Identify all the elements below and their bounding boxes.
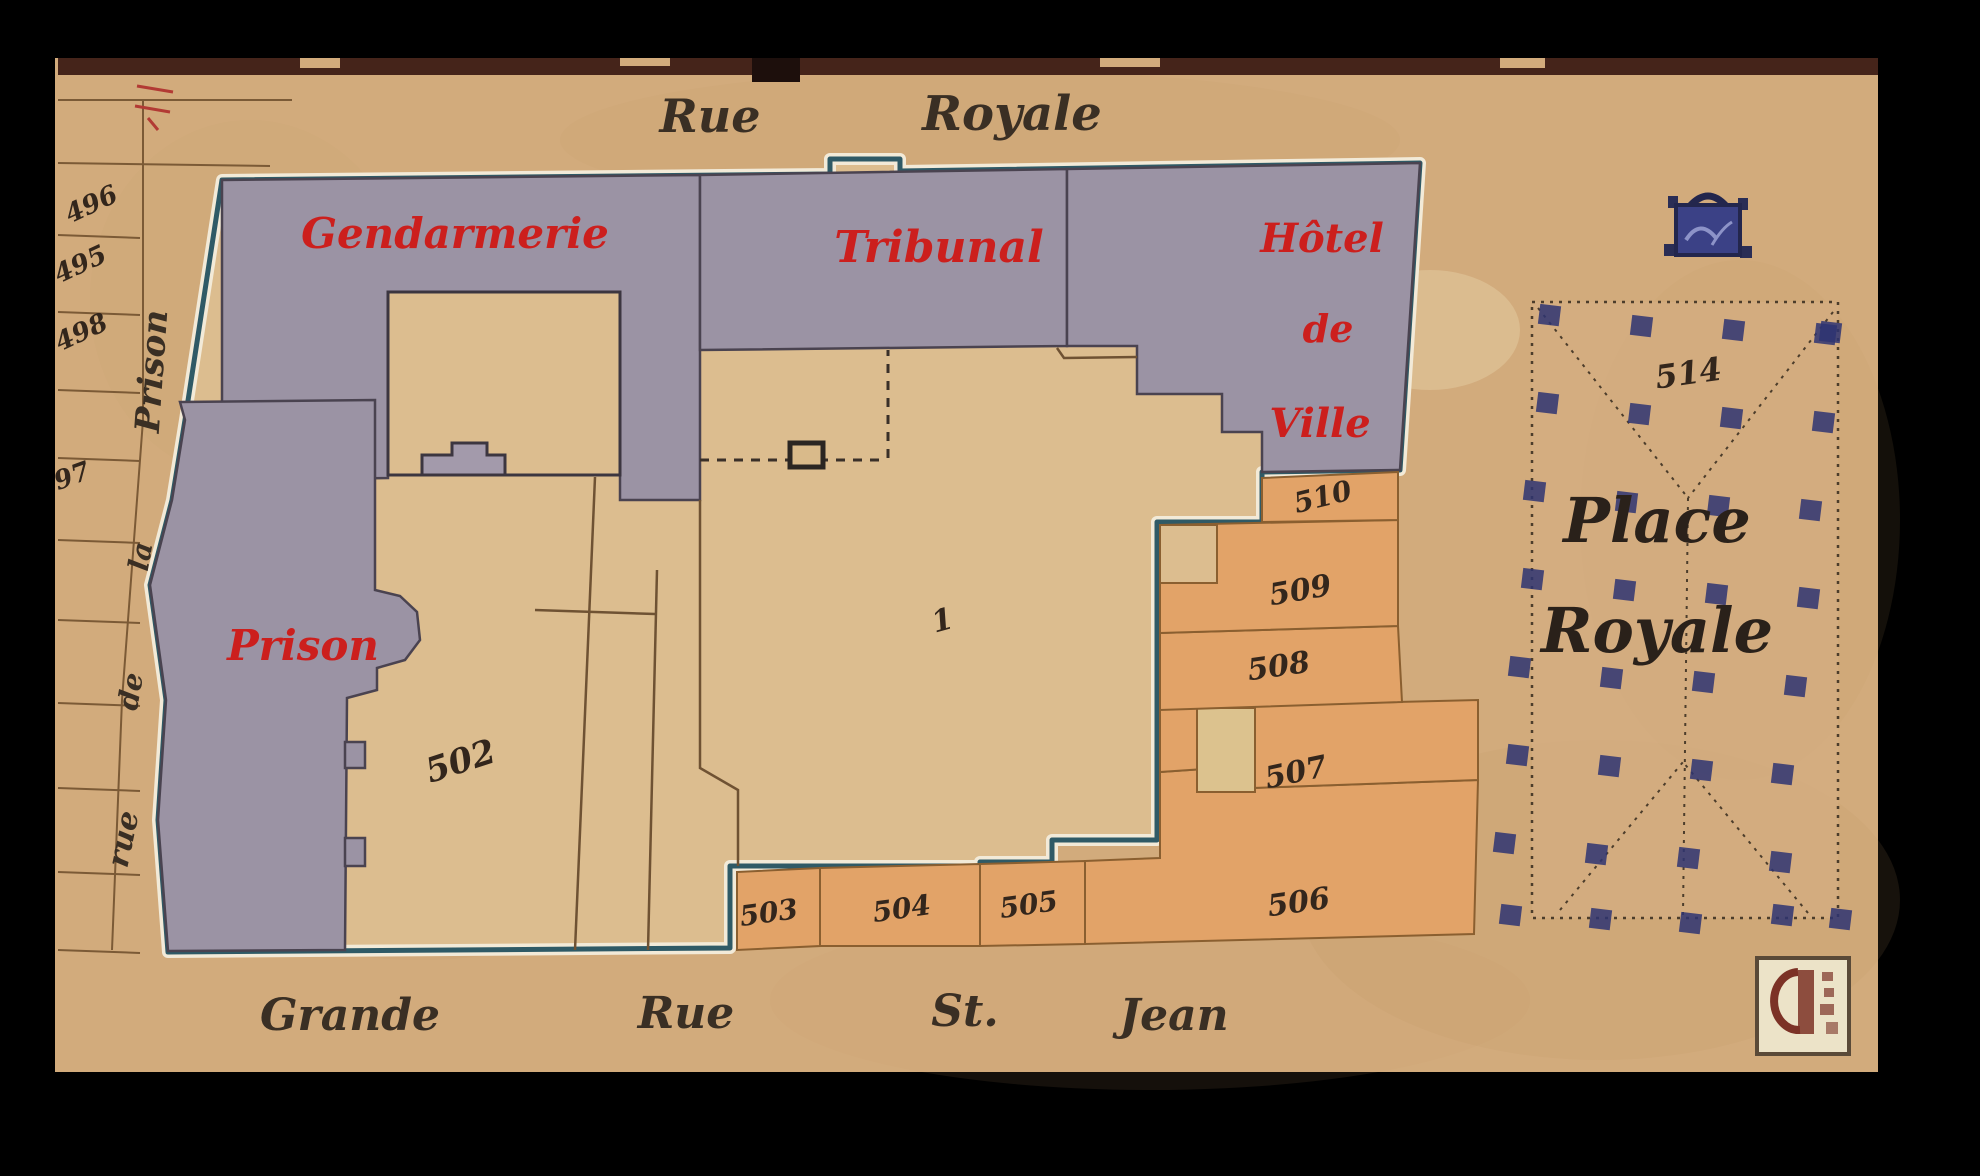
place-tree	[1769, 851, 1792, 873]
place-tree	[1771, 763, 1794, 785]
place-tree	[1679, 912, 1702, 934]
hotel-de-ville-label-line2: de	[1303, 306, 1354, 351]
place-tree	[1812, 411, 1835, 433]
publisher-stamp-icon	[1757, 958, 1849, 1054]
place-tree	[1819, 321, 1842, 343]
place-tree	[1600, 667, 1623, 689]
street-label-jean: Jean	[1112, 990, 1228, 1041]
place-tree	[1797, 587, 1820, 609]
place-tree	[1784, 675, 1807, 697]
gendarmerie-courtyard	[388, 292, 620, 475]
place-tree	[1630, 315, 1653, 337]
street-label-grande: Grande	[260, 990, 440, 1041]
place-tree	[1589, 908, 1612, 930]
street-label-la-vertical: la	[122, 539, 159, 573]
place-tree	[1523, 480, 1546, 502]
prison-wall-notch	[345, 742, 365, 768]
street-label-st: St.	[931, 986, 998, 1037]
place-tree	[1690, 759, 1713, 781]
historical-town-plan: Rue Royale Grande Rue St. Jean rue de la…	[0, 0, 1980, 1176]
place-tree	[1493, 832, 1516, 854]
place-tree	[1585, 843, 1608, 865]
place-royale-label-line1: Place	[1561, 484, 1751, 557]
place-tree	[1799, 499, 1822, 521]
parcel-509-notch	[1160, 525, 1217, 583]
hotel-de-ville-label-line1: Hôtel	[1259, 215, 1384, 262]
place-tree	[1628, 403, 1651, 425]
street-label-rue-bottom: Rue	[636, 988, 735, 1039]
prison-wall-notch	[345, 838, 365, 866]
fountain-icon	[1664, 196, 1752, 258]
map-viewer: Rue Royale Grande Rue St. Jean rue de la…	[0, 0, 1980, 1176]
gendarmerie-label: Gendarmerie	[301, 209, 609, 258]
place-royale-label-line2: Royale	[1539, 594, 1773, 667]
street-label-de-vertical: de	[111, 670, 150, 713]
place-tree	[1722, 319, 1745, 341]
place-tree	[1692, 671, 1715, 693]
place-tree	[1677, 847, 1700, 869]
place-tree	[1771, 904, 1794, 926]
street-label-rue-top: Rue	[658, 89, 761, 143]
prison-label: Prison	[226, 621, 379, 670]
well-marker	[790, 443, 823, 467]
hotel-de-ville-label-line3: Ville	[1269, 400, 1370, 447]
place-tree	[1598, 755, 1621, 777]
place-tree	[1720, 407, 1743, 429]
place-tree	[1538, 304, 1561, 326]
place-tree	[1536, 392, 1559, 414]
street-label-royale-top: Royale	[920, 86, 1102, 142]
parcel-507-inner-yard	[1197, 708, 1255, 792]
place-tree	[1829, 908, 1852, 930]
place-tree	[1499, 904, 1522, 926]
place-tree	[1508, 656, 1531, 678]
place-tree	[1506, 744, 1529, 766]
place-tree	[1521, 568, 1544, 590]
tribunal-label: Tribunal	[834, 222, 1043, 273]
